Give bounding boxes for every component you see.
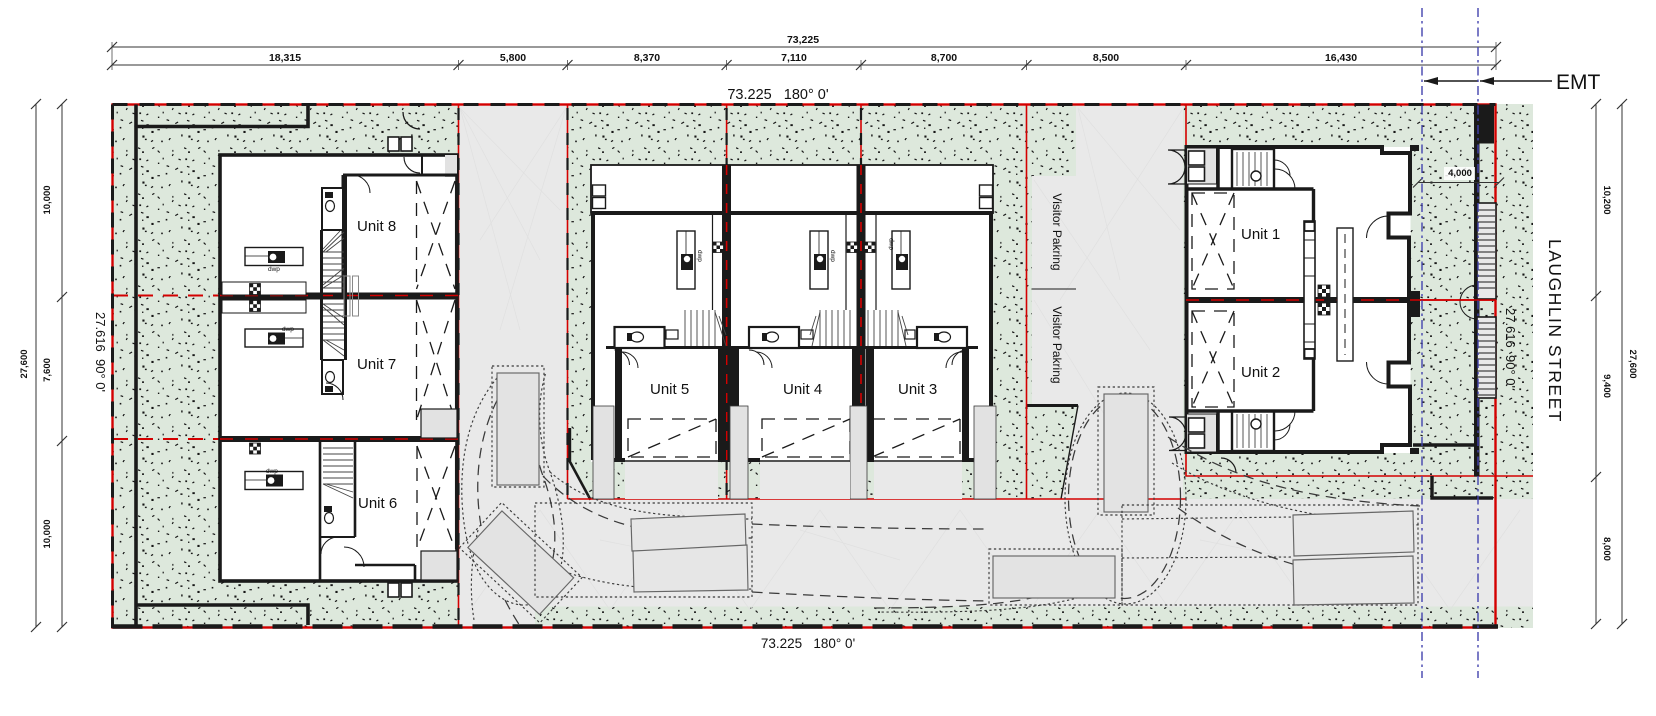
svg-text:5,800: 5,800	[500, 52, 526, 64]
svg-text:Unit 7: Unit 7	[357, 356, 396, 373]
svg-text:EMT: EMT	[1556, 71, 1601, 94]
svg-text:Unit 2: Unit 2	[1241, 364, 1280, 381]
svg-text:18,315: 18,315	[269, 52, 301, 64]
svg-text:16,430: 16,430	[1325, 52, 1357, 64]
svg-text:dwp: dwp	[696, 250, 703, 262]
svg-text:LAUGHLIN STREET: LAUGHLIN STREET	[1545, 239, 1565, 423]
svg-text:27.616 90° 0': 27.616 90° 0'	[93, 312, 108, 392]
svg-text:73.225 180° 0': 73.225 180° 0'	[761, 636, 855, 651]
svg-text:dwp: dwp	[282, 326, 294, 333]
svg-text:Unit 5: Unit 5	[650, 381, 689, 398]
svg-text:dwp: dwp	[266, 468, 278, 475]
svg-text:73.225 180° 0': 73.225 180° 0'	[727, 87, 829, 103]
svg-text:Visitor Pakring: Visitor Pakring	[1050, 193, 1064, 270]
svg-text:dwp: dwp	[268, 266, 280, 273]
svg-text:73,225: 73,225	[787, 34, 819, 46]
svg-text:27,600: 27,600	[1627, 349, 1638, 378]
svg-text:Unit 1: Unit 1	[1241, 226, 1280, 243]
svg-text:9,400: 9,400	[1601, 374, 1612, 398]
svg-text:4,000: 4,000	[1448, 168, 1472, 179]
svg-text:dwp: dwp	[829, 250, 836, 262]
svg-text:8,000: 8,000	[1601, 537, 1612, 561]
svg-text:dwp: dwp	[888, 238, 895, 250]
svg-text:10,200: 10,200	[1601, 185, 1612, 214]
svg-text:Unit 3: Unit 3	[898, 381, 937, 398]
svg-text:Unit 6: Unit 6	[358, 495, 397, 512]
svg-text:7,600: 7,600	[42, 358, 53, 382]
svg-text:8,500: 8,500	[1093, 52, 1119, 64]
svg-text:7,110: 7,110	[781, 52, 807, 64]
svg-text:10,000: 10,000	[42, 185, 53, 214]
svg-text:27,600: 27,600	[19, 349, 30, 378]
svg-text:Unit 4: Unit 4	[783, 381, 822, 398]
svg-text:8,370: 8,370	[634, 52, 660, 64]
svg-text:27.616 90° 0': 27.616 90° 0'	[1503, 308, 1518, 388]
svg-text:8,700: 8,700	[931, 52, 957, 64]
svg-text:Visitor Pakring: Visitor Pakring	[1050, 306, 1064, 383]
svg-text:Unit 8: Unit 8	[357, 218, 396, 235]
svg-text:10,000: 10,000	[42, 519, 53, 548]
